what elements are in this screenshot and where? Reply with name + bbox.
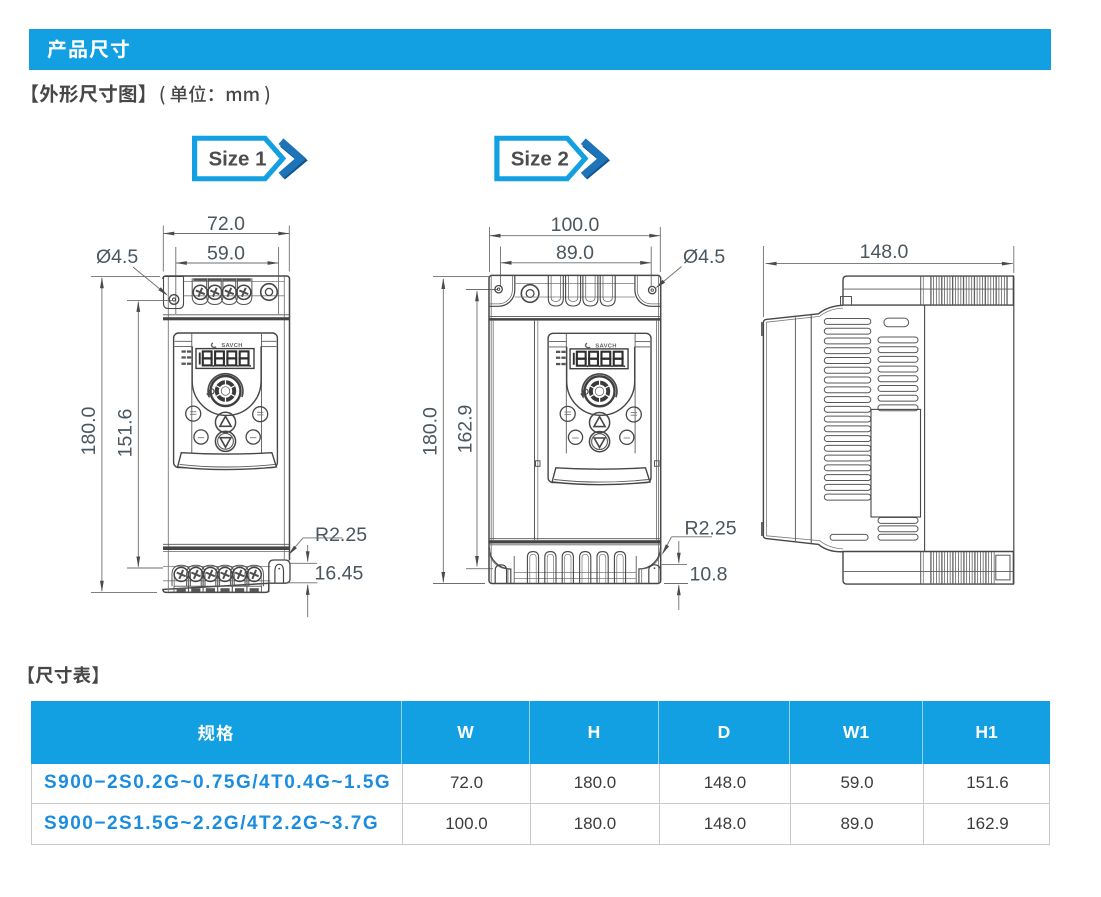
svg-text:100.0: 100.0 (551, 214, 600, 236)
svg-text:72.0: 72.0 (207, 213, 245, 235)
svg-text:151.6: 151.6 (115, 409, 137, 458)
svg-text:R2.25: R2.25 (685, 518, 737, 540)
svg-text:10.8: 10.8 (690, 564, 728, 586)
svg-text:162.9: 162.9 (455, 405, 477, 454)
svg-text:180.0: 180.0 (420, 407, 442, 456)
svg-text:Size 1: Size 1 (208, 148, 266, 171)
svg-text:Ø4.5: Ø4.5 (683, 246, 725, 268)
svg-text:Ø4.5: Ø4.5 (96, 246, 138, 268)
svg-text:16.45: 16.45 (315, 563, 364, 585)
svg-text:R2.25: R2.25 (315, 524, 367, 546)
svg-text:59.0: 59.0 (207, 243, 245, 265)
svg-text:Size 2: Size 2 (511, 148, 569, 171)
svg-text:180.0: 180.0 (78, 406, 100, 455)
svg-text:148.0: 148.0 (860, 241, 909, 263)
svg-text:89.0: 89.0 (556, 242, 594, 264)
